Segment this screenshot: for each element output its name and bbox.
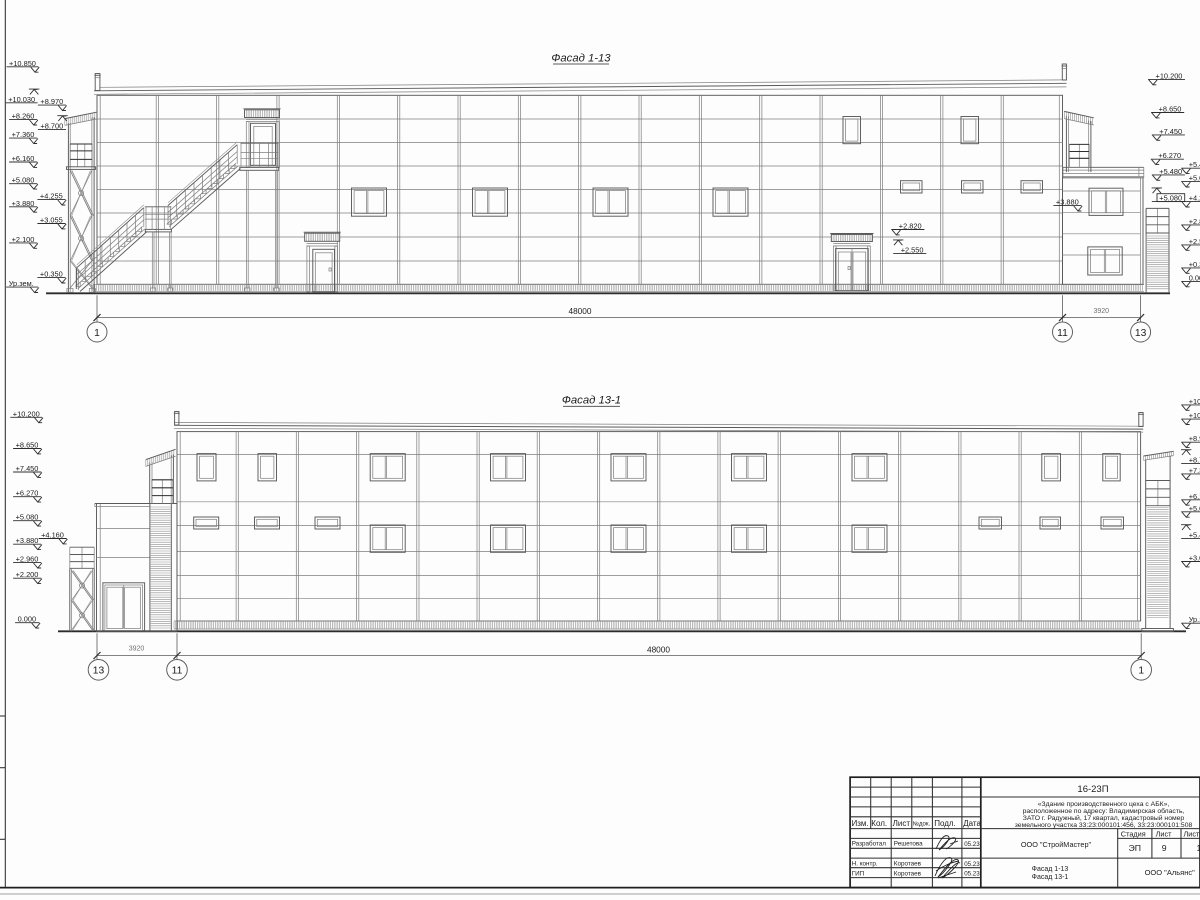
svg-text:+8.970: +8.970	[40, 97, 63, 106]
svg-text:земельного участка 33:23:00010: земельного участка 33:23:000101:456, 33:…	[1015, 822, 1193, 829]
svg-text:48000: 48000	[568, 306, 591, 316]
svg-text:+8.700: +8.700	[40, 121, 63, 130]
svg-text:+8.650: +8.650	[16, 441, 39, 450]
svg-text:Ур.зем.: Ур.зем.	[1189, 615, 1200, 624]
svg-text:Ур.зем.: Ур.зем.	[9, 279, 34, 288]
svg-text:+8.970: +8.970	[1189, 434, 1200, 443]
svg-text:11: 11	[1057, 328, 1068, 339]
svg-text:Подл.: Подл.	[934, 819, 956, 828]
svg-text:+5.080: +5.080	[1189, 174, 1200, 183]
svg-text:+10.030: +10.030	[8, 95, 35, 104]
svg-text:+3.880: +3.880	[16, 536, 39, 545]
svg-text:+8.260: +8.260	[12, 112, 35, 121]
svg-text:11: 11	[172, 666, 183, 677]
svg-text:Н. контр.: Н. контр.	[852, 861, 878, 868]
svg-text:05.23: 05.23	[964, 871, 980, 878]
svg-text:3920: 3920	[1094, 308, 1110, 315]
svg-text:Дата: Дата	[963, 819, 981, 828]
svg-text:+5.080: +5.080	[12, 176, 35, 185]
svg-text:№док.: №док.	[913, 820, 931, 827]
svg-text:0.000: 0.000	[18, 615, 36, 624]
svg-text:+6.160: +6.160	[1189, 492, 1200, 501]
svg-text:ЭП: ЭП	[1129, 843, 1142, 853]
svg-text:05.23: 05.23	[964, 841, 980, 848]
svg-text:48000: 48000	[647, 644, 670, 654]
svg-text:Решетова: Решетова	[894, 841, 923, 848]
svg-text:ЗАТО г. Радужный, 17 квартал,: ЗАТО г. Радужный, 17 квартал, кадастровы…	[1023, 814, 1185, 822]
svg-text:16-23П: 16-23П	[1077, 784, 1108, 795]
svg-text:+0.350: +0.350	[40, 270, 63, 279]
svg-text:10: 10	[1197, 843, 1200, 853]
svg-text:+10.850: +10.850	[9, 59, 36, 68]
svg-text:9: 9	[1162, 843, 1167, 853]
svg-text:+10.200: +10.200	[1156, 71, 1183, 80]
svg-text:+0.350: +0.350	[1189, 260, 1200, 269]
svg-text:Коротаев: Коротаев	[894, 870, 922, 877]
svg-text:Изм.: Изм.	[852, 819, 869, 828]
svg-text:+3.055: +3.055	[40, 216, 63, 225]
svg-text:Фасад 1-13: Фасад 1-13	[1032, 866, 1069, 873]
svg-text:Лист: Лист	[893, 819, 911, 828]
svg-text:+10.030: +10.030	[1189, 411, 1200, 420]
svg-text:Лист: Лист	[1184, 830, 1200, 839]
svg-text:+3.055: +3.055	[1189, 554, 1200, 563]
svg-text:+3.880: +3.880	[12, 199, 35, 208]
svg-text:+6.270: +6.270	[1158, 151, 1181, 160]
svg-text:+6.270: +6.270	[16, 489, 39, 498]
svg-text:+2.820: +2.820	[1189, 217, 1200, 226]
svg-text:Кол.: Кол.	[871, 819, 887, 828]
svg-text:Стадия: Стадия	[1121, 830, 1146, 839]
svg-text:+7.360: +7.360	[12, 130, 35, 139]
svg-text:Коротаев: Коротаев	[894, 861, 922, 868]
svg-text:+6.160: +6.160	[12, 154, 35, 163]
svg-text:+5.480: +5.480	[1159, 167, 1182, 176]
svg-text:+5.480: +5.480	[1189, 160, 1200, 169]
svg-text:Фасад 1-13: Фасад 1-13	[551, 53, 611, 65]
svg-text:+8.650: +8.650	[1159, 105, 1182, 114]
svg-text:«Здание производственного цеха: «Здание производственного цеха с АБК»,	[1038, 801, 1170, 808]
svg-text:+2.820: +2.820	[899, 222, 922, 231]
svg-text:Лист: Лист	[1156, 830, 1173, 839]
svg-text:13: 13	[1135, 328, 1147, 339]
svg-text:+10.200: +10.200	[13, 409, 40, 418]
svg-text:+5.080: +5.080	[16, 513, 39, 522]
svg-text:расположенное по адресу: Влади: расположенное по адресу: Владимирская об…	[1023, 807, 1185, 815]
svg-text:+2.550: +2.550	[1189, 237, 1200, 246]
svg-text:05.23: 05.23	[964, 861, 980, 868]
svg-text:+2.200: +2.200	[16, 570, 39, 579]
svg-text:ГИП: ГИП	[852, 870, 865, 877]
svg-text:0.000: 0.000	[1189, 273, 1200, 282]
svg-text:+7.360: +7.360	[1189, 466, 1200, 475]
svg-text:+8.700: +8.700	[1189, 455, 1200, 464]
svg-text:+5.080: +5.080	[1189, 504, 1200, 513]
svg-text:+2.100: +2.100	[12, 235, 35, 244]
svg-text:3920: 3920	[129, 646, 145, 653]
svg-text:+5.480: +5.480	[1189, 530, 1200, 539]
svg-text:+4.255: +4.255	[40, 192, 63, 201]
svg-text:13: 13	[93, 666, 105, 677]
svg-text:+4.160: +4.160	[41, 531, 64, 540]
svg-text:+2.960: +2.960	[16, 555, 39, 564]
svg-text:+7.450: +7.450	[16, 464, 39, 473]
svg-text:1: 1	[94, 328, 100, 339]
svg-text:Фасад 13-1: Фасад 13-1	[562, 395, 621, 407]
svg-text:+10.850: +10.850	[1189, 397, 1200, 406]
svg-text:+3.880: +3.880	[1056, 198, 1079, 207]
svg-text:ООО "Альянс": ООО "Альянс"	[1145, 868, 1195, 877]
svg-text:ООО "СтройМастер": ООО "СтройМастер"	[1021, 840, 1092, 849]
svg-text:+7.450: +7.450	[1159, 127, 1182, 136]
svg-text:Фасад 13-1: Фасад 13-1	[1032, 874, 1069, 881]
svg-text:+2.550: +2.550	[901, 246, 924, 255]
svg-text:1: 1	[1138, 666, 1144, 677]
svg-text:+4.255: +4.255	[1189, 194, 1200, 203]
svg-text:Разработал: Разработал	[852, 840, 887, 848]
